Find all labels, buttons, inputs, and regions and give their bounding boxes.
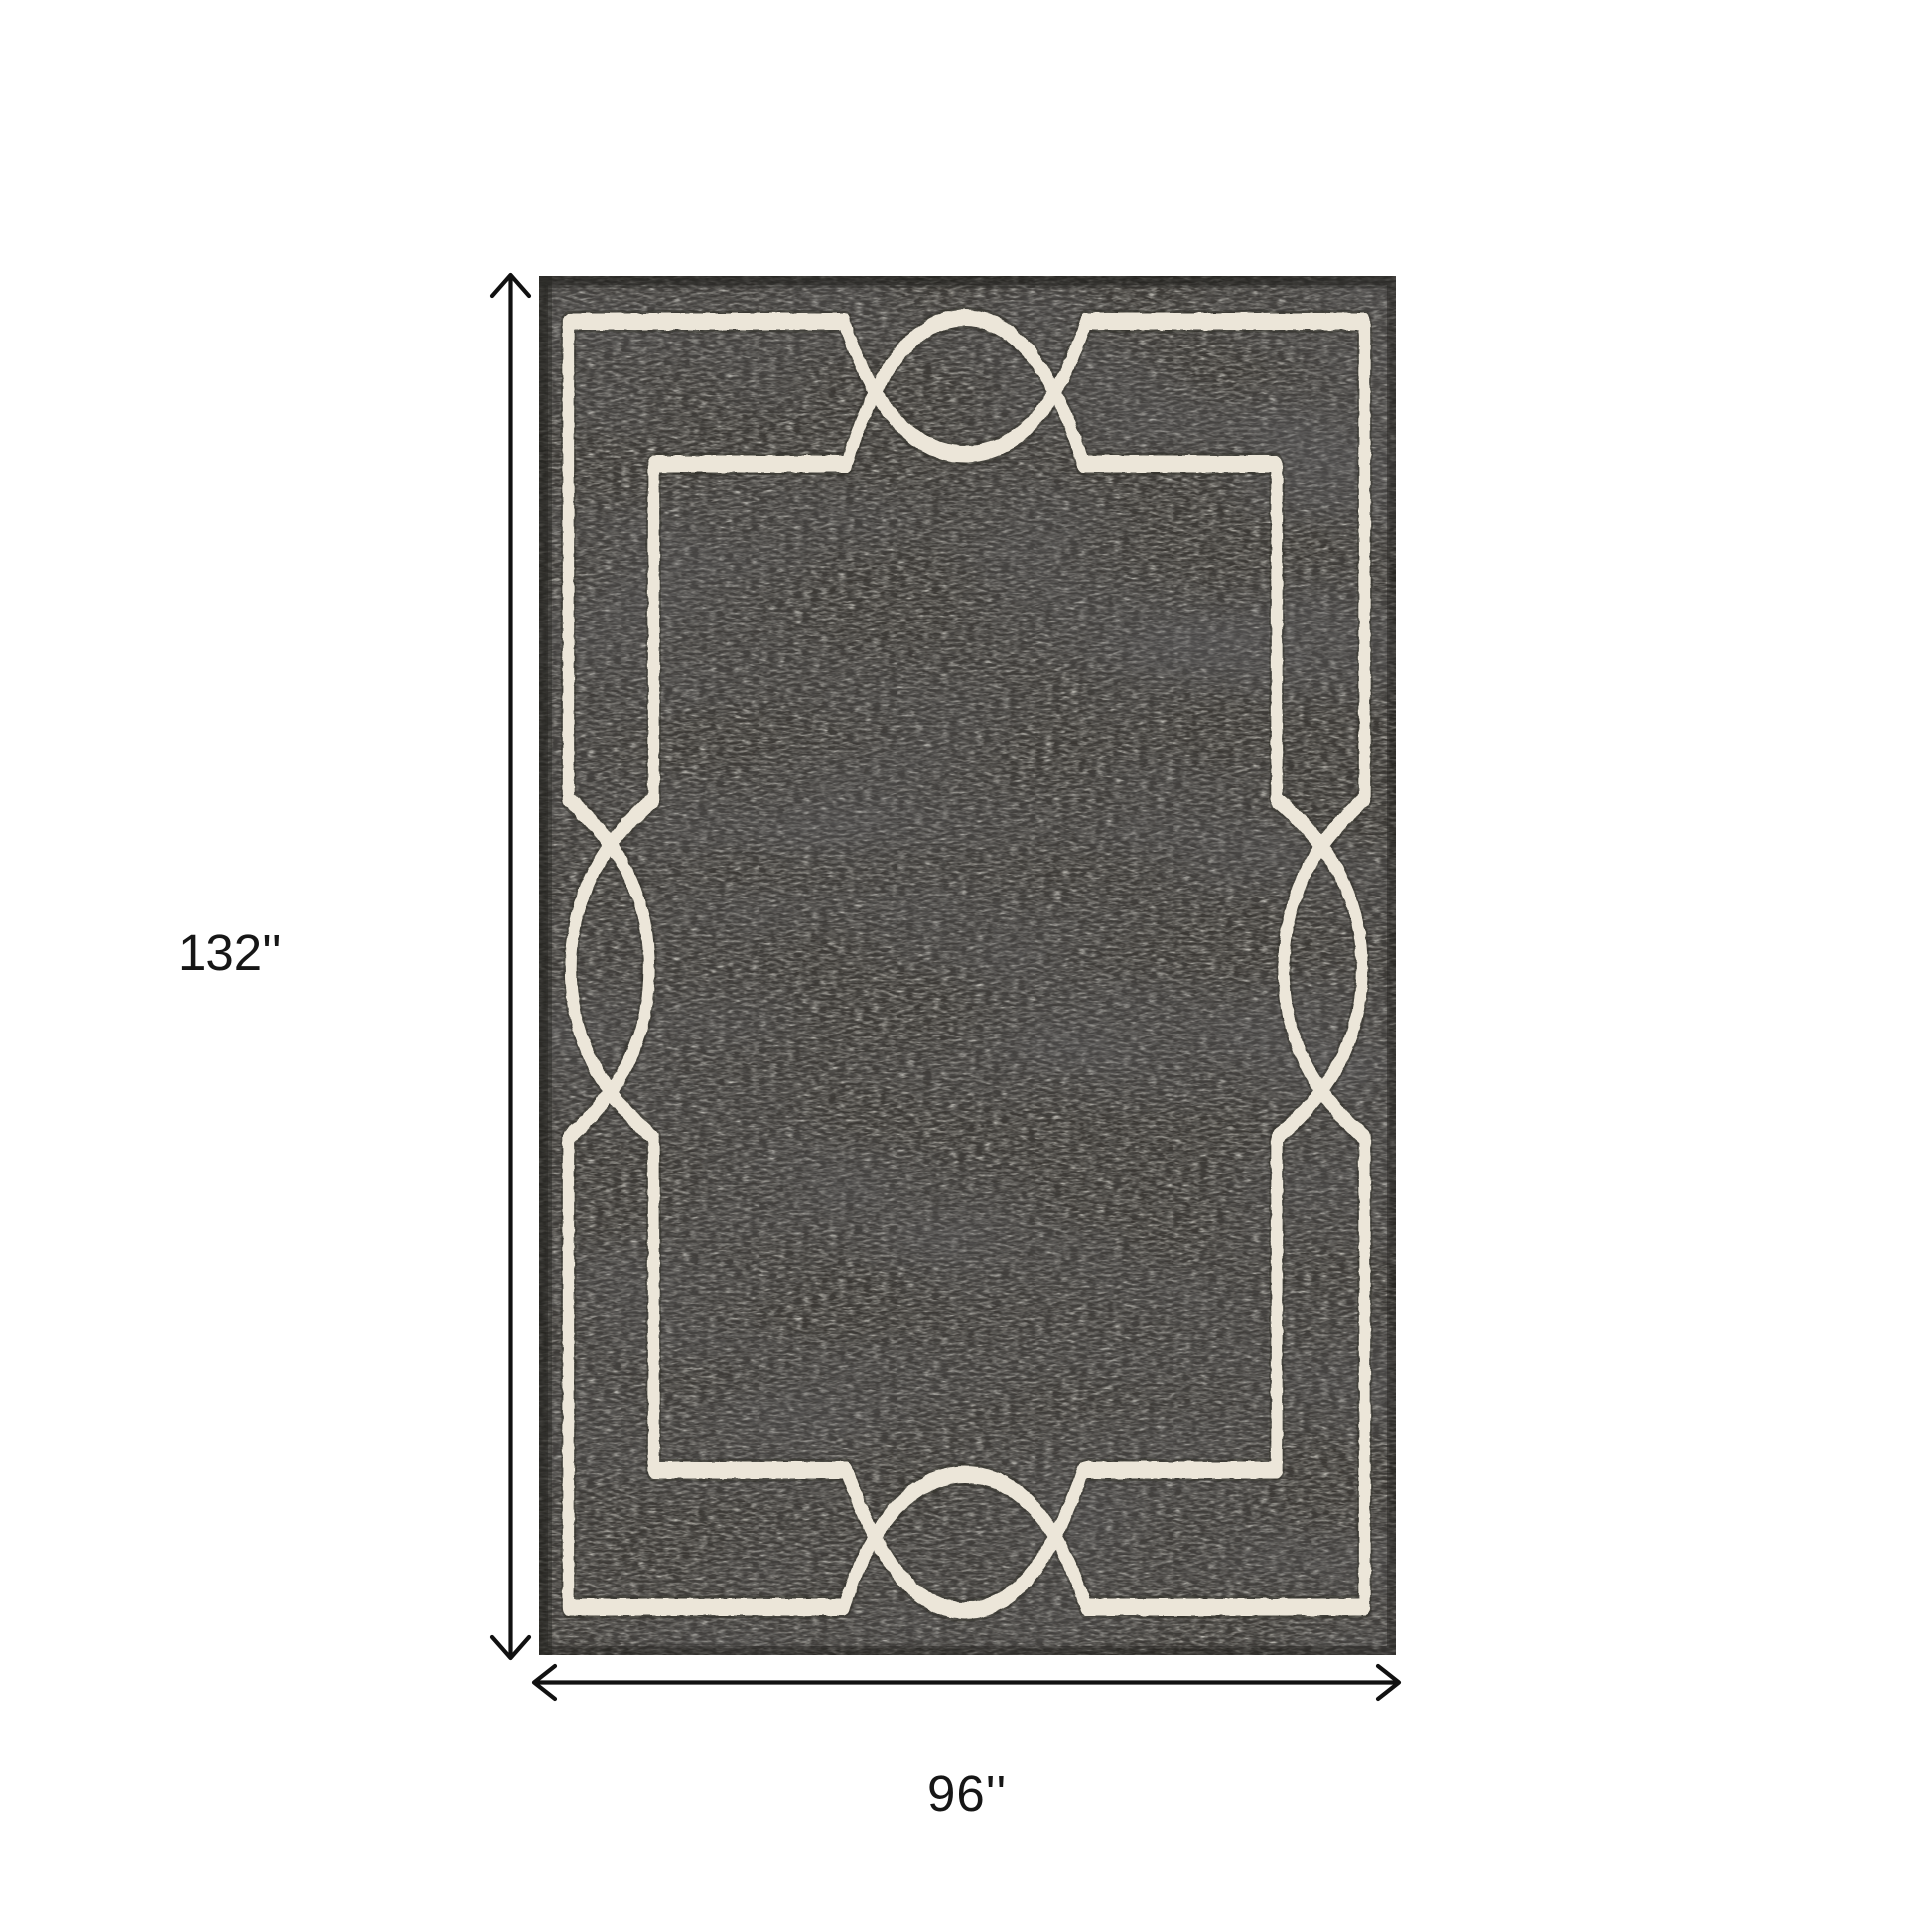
svg-text:96'': 96'' <box>927 1765 1007 1822</box>
svg-text:132'': 132'' <box>178 924 282 981</box>
